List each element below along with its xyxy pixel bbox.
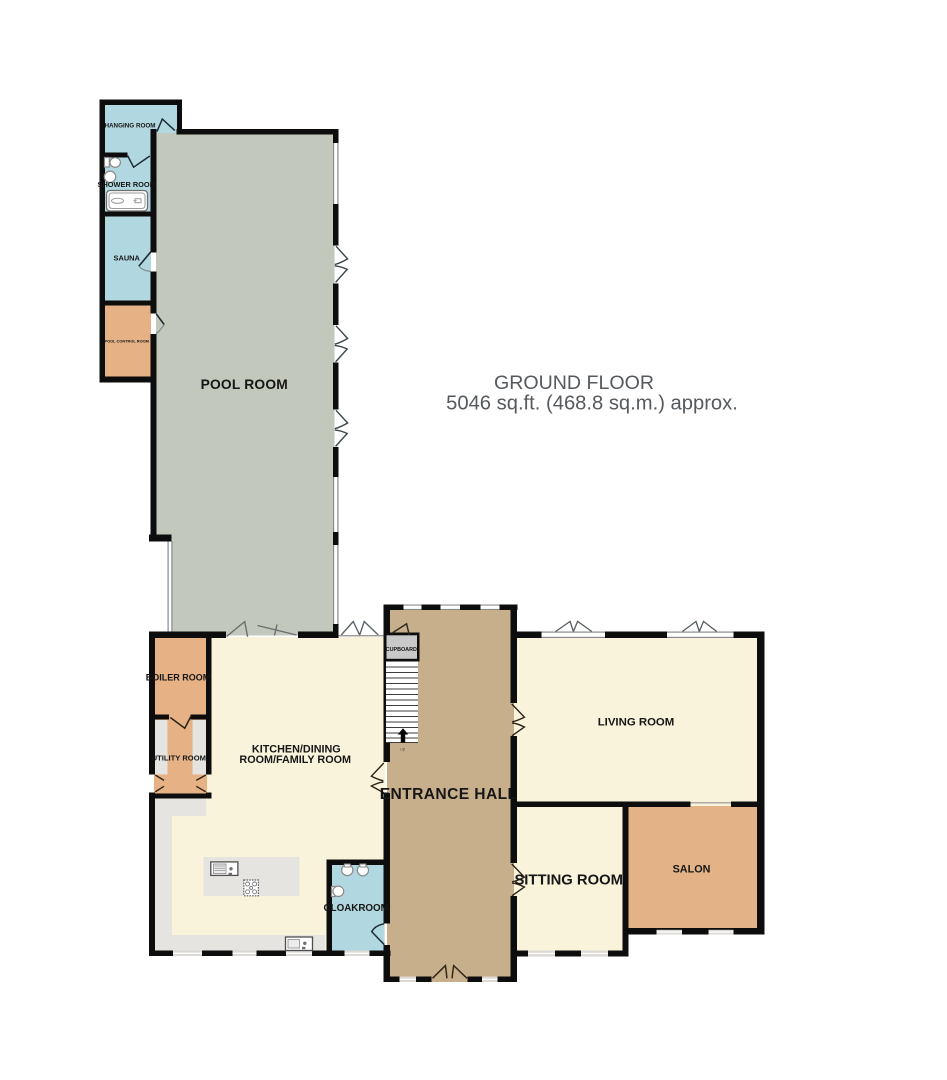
svg-text:SAUNA: SAUNA: [114, 254, 141, 263]
svg-text:UTILITY ROOM: UTILITY ROOM: [152, 754, 206, 763]
svg-text:SITTING ROOM: SITTING ROOM: [514, 873, 623, 889]
svg-text:GROUND FLOOR: GROUND FLOOR: [494, 372, 654, 394]
svg-text:POOL CONTROL ROOM: POOL CONTROL ROOM: [105, 339, 149, 344]
svg-text:up: up: [400, 747, 406, 752]
svg-text:HANGING ROOM: HANGING ROOM: [104, 122, 155, 129]
svg-text:LIVING ROOM: LIVING ROOM: [598, 717, 675, 729]
svg-text:BOILER ROOM: BOILER ROOM: [146, 672, 211, 682]
svg-text:SHOWER ROOM: SHOWER ROOM: [98, 180, 156, 189]
svg-text:5046 sq.ft. (468.8 sq.m.) appr: 5046 sq.ft. (468.8 sq.m.) approx.: [446, 393, 738, 415]
svg-text:CUPBOARD: CUPBOARD: [386, 647, 417, 653]
svg-text:ROOM/FAMILY ROOM: ROOM/FAMILY ROOM: [239, 754, 351, 766]
svg-text:CLOAKROOM: CLOAKROOM: [324, 903, 389, 914]
svg-text:POOL ROOM: POOL ROOM: [201, 377, 288, 392]
svg-text:SALON: SALON: [673, 864, 711, 876]
svg-text:ENTRANCE HALL: ENTRANCE HALL: [380, 786, 518, 803]
